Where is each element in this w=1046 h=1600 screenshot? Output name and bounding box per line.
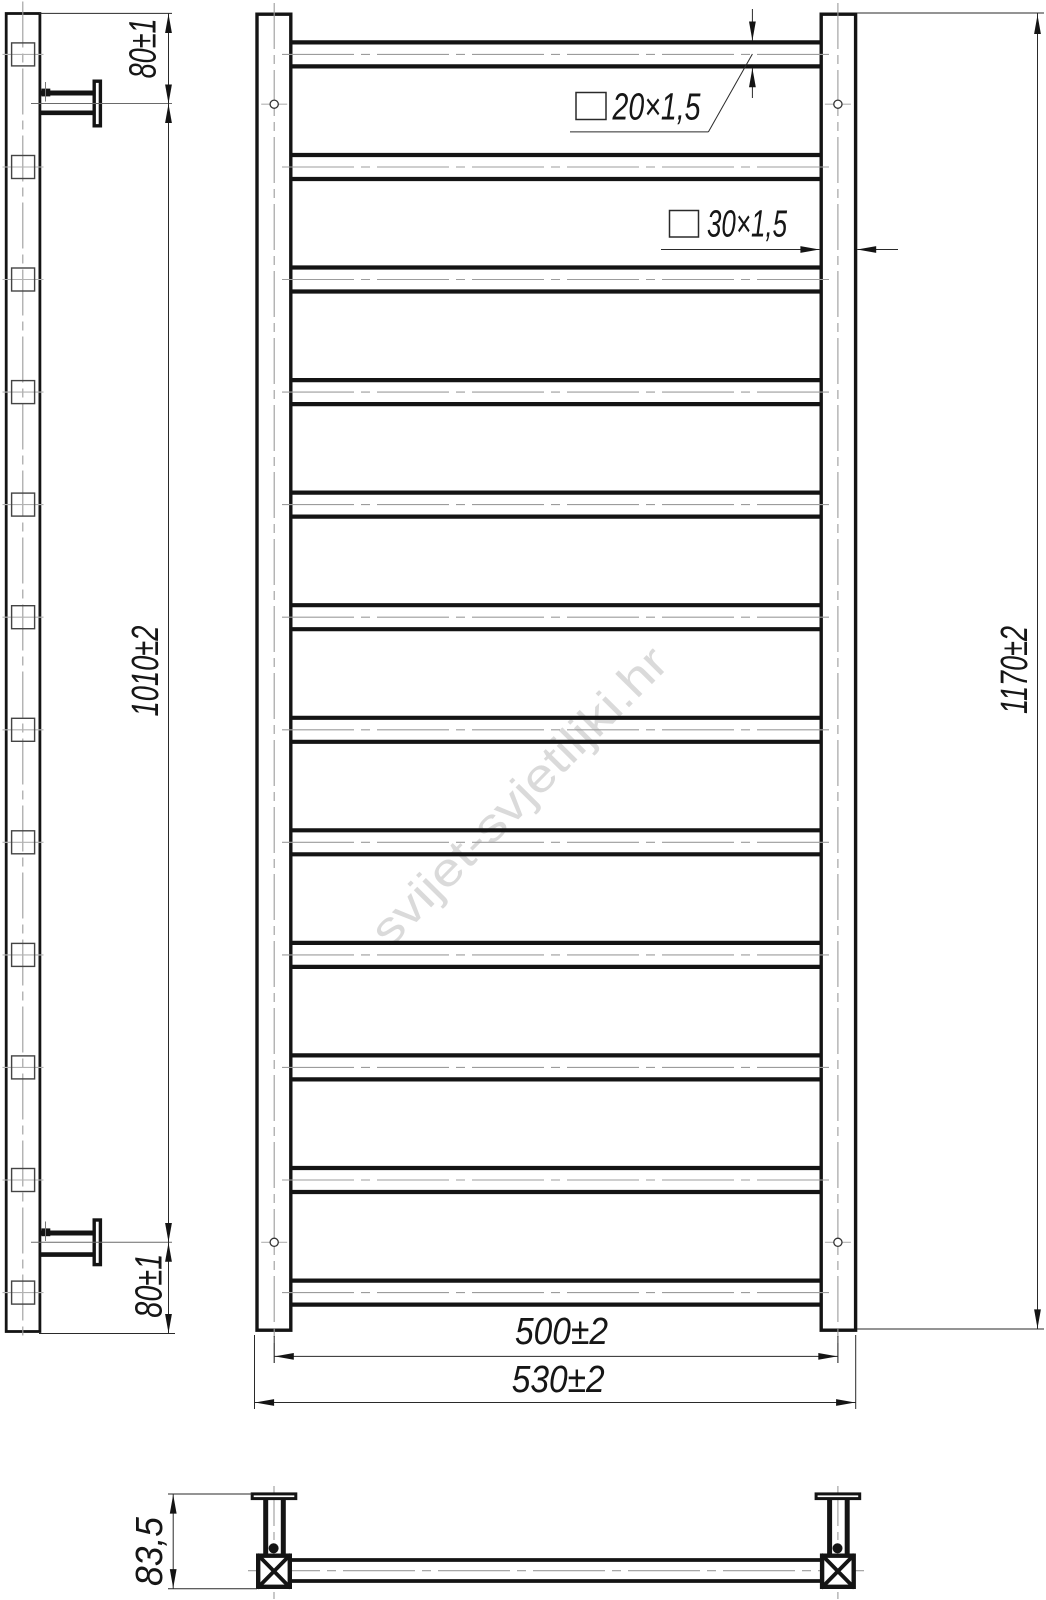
svg-text:30×1,5: 30×1,5 — [707, 204, 788, 246]
svg-text:530±2: 530±2 — [512, 1359, 605, 1401]
svg-text:1170±2: 1170±2 — [994, 626, 1036, 714]
svg-text:80±1: 80±1 — [129, 1254, 171, 1318]
svg-text:83,5: 83,5 — [129, 1516, 171, 1586]
svg-text:20×1,5: 20×1,5 — [612, 87, 701, 129]
svg-text:svijet-svjetiljki.hr: svijet-svjetiljki.hr — [360, 635, 678, 956]
svg-text:500±2: 500±2 — [515, 1311, 608, 1353]
svg-text:1010±2: 1010±2 — [125, 626, 167, 717]
svg-text:80±1: 80±1 — [123, 18, 165, 78]
